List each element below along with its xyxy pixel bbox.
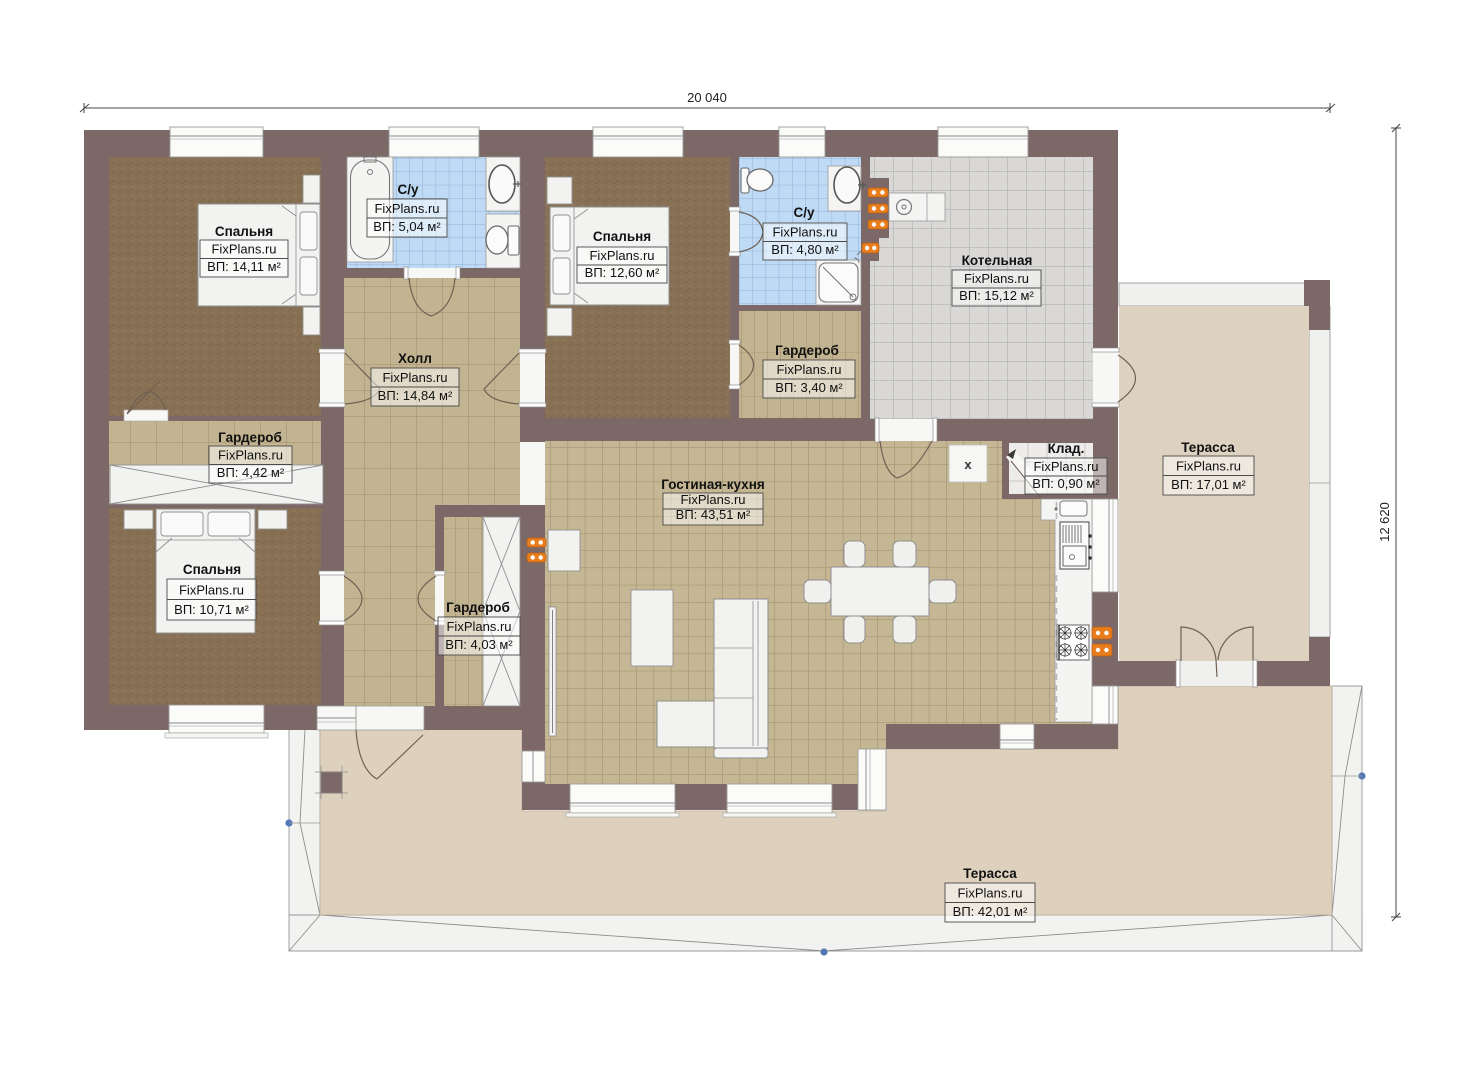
svg-text:FixPlans.ru: FixPlans.ru	[1176, 459, 1241, 474]
svg-text:FixPlans.ru: FixPlans.ru	[382, 370, 447, 385]
svg-text:Гардероб: Гардероб	[775, 343, 839, 358]
svg-text:ВП: 10,71 м²: ВП: 10,71 м²	[174, 602, 249, 617]
svg-text:ВП: 0,90 м²: ВП: 0,90 м²	[1032, 476, 1100, 491]
svg-text:Клад.: Клад.	[1048, 441, 1085, 456]
svg-text:ВП: 12,60 м²: ВП: 12,60 м²	[585, 265, 660, 280]
svg-text:Гардероб: Гардероб	[218, 430, 282, 445]
svg-text:ВП: 4,80 м²: ВП: 4,80 м²	[771, 242, 839, 257]
svg-text:FixPlans.ru: FixPlans.ru	[964, 271, 1029, 286]
svg-text:Спальня: Спальня	[593, 229, 651, 244]
svg-text:FixPlans.ru: FixPlans.ru	[1033, 459, 1098, 474]
svg-text:С/у: С/у	[793, 205, 815, 220]
svg-text:FixPlans.ru: FixPlans.ru	[772, 225, 837, 240]
svg-text:x: x	[964, 457, 972, 472]
svg-text:FixPlans.ru: FixPlans.ru	[179, 583, 244, 598]
svg-text:ВП: 14,11 м²: ВП: 14,11 м²	[207, 259, 281, 274]
svg-text:Спальня: Спальня	[183, 562, 241, 577]
svg-text:FixPlans.ru: FixPlans.ru	[218, 448, 283, 463]
svg-text:Гардероб: Гардероб	[446, 600, 510, 615]
svg-text:С/у: С/у	[397, 182, 419, 197]
svg-text:FixPlans.ru: FixPlans.ru	[374, 201, 439, 216]
svg-text:ВП: 17,01 м²: ВП: 17,01 м²	[1171, 477, 1246, 492]
svg-text:12 620: 12 620	[1377, 502, 1392, 542]
svg-text:Терасса: Терасса	[1181, 440, 1235, 455]
svg-text:ВП: 3,40 м²: ВП: 3,40 м²	[775, 380, 843, 395]
svg-text:ВП: 14,84 м²: ВП: 14,84 м²	[378, 388, 453, 403]
svg-text:Гостиная-кухня: Гостиная-кухня	[661, 477, 764, 492]
svg-text:ВП: 4,42 м²: ВП: 4,42 м²	[217, 465, 285, 480]
svg-text:Холл: Холл	[398, 351, 432, 366]
svg-text:FixPlans.ru: FixPlans.ru	[957, 886, 1022, 901]
svg-text:FixPlans.ru: FixPlans.ru	[589, 248, 654, 263]
svg-text:FixPlans.ru: FixPlans.ru	[446, 619, 511, 634]
svg-text:Котельная: Котельная	[962, 253, 1033, 268]
svg-text:20 040: 20 040	[687, 90, 727, 105]
svg-text:ВП: 5,04 м²: ВП: 5,04 м²	[373, 219, 441, 234]
svg-text:FixPlans.ru: FixPlans.ru	[776, 362, 841, 377]
svg-text:ВП: 43,51 м²: ВП: 43,51 м²	[676, 507, 751, 522]
svg-text:ВП: 4,03 м²: ВП: 4,03 м²	[445, 637, 513, 652]
svg-text:Терасса: Терасса	[963, 866, 1017, 881]
svg-text:ВП: 42,01 м²: ВП: 42,01 м²	[953, 904, 1028, 919]
svg-text:FixPlans.ru: FixPlans.ru	[211, 242, 276, 257]
svg-text:Спальня: Спальня	[215, 224, 273, 239]
svg-text:ВП: 15,12 м²: ВП: 15,12 м²	[959, 288, 1034, 303]
svg-text:FixPlans.ru: FixPlans.ru	[680, 492, 745, 507]
